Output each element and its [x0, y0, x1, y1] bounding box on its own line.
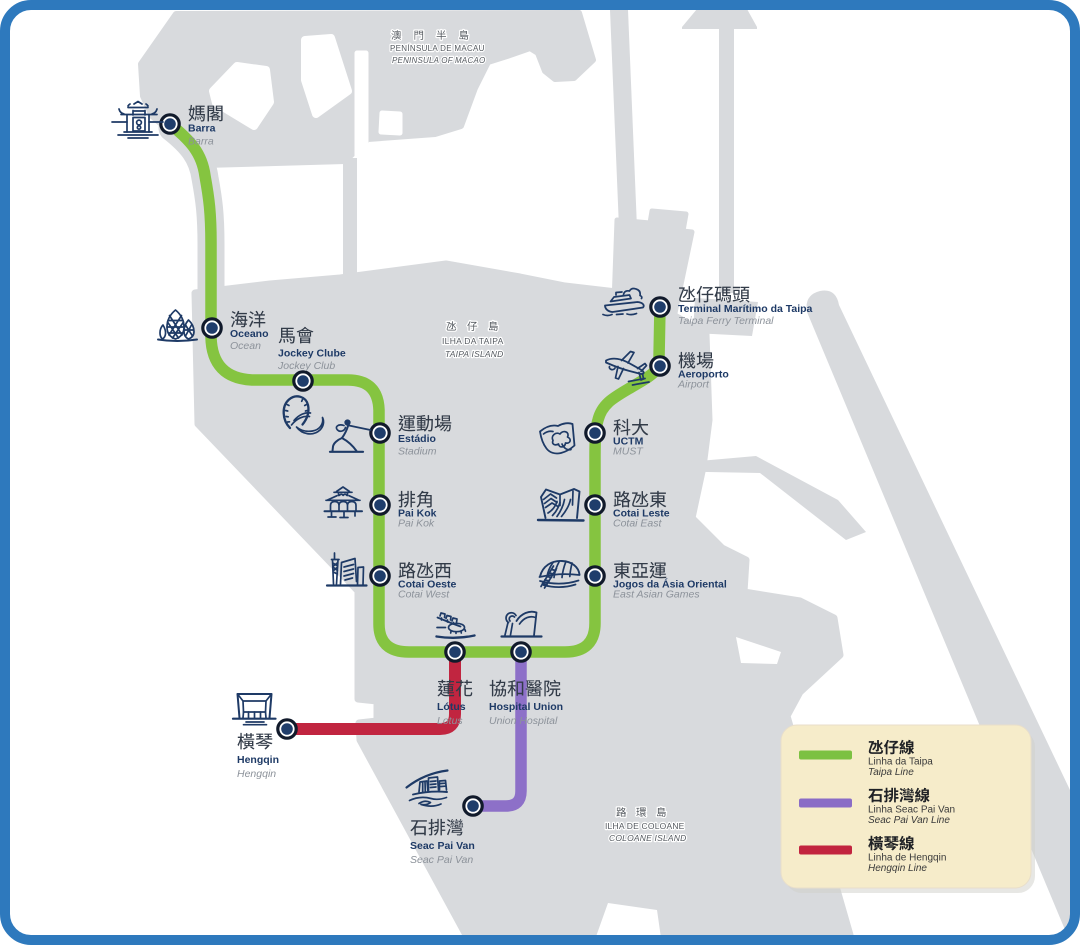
- svg-text:Lótus: Lótus: [437, 701, 466, 713]
- svg-text:Linha Seac Pai Van: Linha Seac Pai Van: [868, 805, 955, 816]
- svg-text:Oceano: Oceano: [230, 328, 269, 340]
- svg-text:Hengqin: Hengqin: [237, 754, 279, 766]
- svg-text:Jockey Club: Jockey Club: [277, 360, 335, 372]
- svg-text:Terminal Marítimo da Taipa: Terminal Marítimo da Taipa: [678, 303, 813, 315]
- svg-text:Airport: Airport: [677, 379, 710, 391]
- svg-text:Taipa Line: Taipa Line: [868, 767, 914, 778]
- svg-text:COLOANE ISLAND: COLOANE ISLAND: [609, 833, 686, 843]
- svg-text:MUST: MUST: [613, 446, 644, 458]
- svg-text:Barra: Barra: [188, 123, 216, 135]
- svg-text:Barra: Barra: [188, 136, 214, 148]
- svg-text:Cotai West: Cotai West: [398, 589, 450, 601]
- svg-text:Cotai East: Cotai East: [613, 518, 663, 530]
- svg-text:Estádio: Estádio: [398, 433, 436, 445]
- svg-text:ILHA DA TAIPA: ILHA DA TAIPA: [442, 336, 504, 346]
- svg-text:Hengqin Line: Hengqin Line: [868, 863, 927, 874]
- svg-text:Linha de Hengqin: Linha de Hengqin: [868, 853, 946, 864]
- svg-text:Stadium: Stadium: [398, 446, 437, 458]
- svg-text:Seac Pai Van Line: Seac Pai Van Line: [868, 815, 950, 826]
- svg-text:Seac Pai Van: Seac Pai Van: [410, 854, 473, 866]
- svg-text:PENÍNSULA DE MACAU: PENÍNSULA DE MACAU: [390, 44, 485, 53]
- svg-text:ILHA DE COLOANE: ILHA DE COLOANE: [605, 821, 685, 831]
- svg-text:East Asian Games: East Asian Games: [613, 589, 700, 601]
- svg-text:Lotus: Lotus: [437, 715, 463, 727]
- svg-text:TAIPA ISLAND: TAIPA ISLAND: [445, 349, 503, 359]
- svg-text:Linha da Taipa: Linha da Taipa: [868, 757, 933, 768]
- svg-text:Taipa Ferry Terminal: Taipa Ferry Terminal: [678, 315, 774, 327]
- svg-text:Jockey Clube: Jockey Clube: [278, 348, 346, 360]
- svg-text:Pai Kok: Pai Kok: [398, 518, 435, 530]
- svg-text:Union Hospital: Union Hospital: [489, 715, 558, 727]
- svg-text:Hengqin: Hengqin: [237, 768, 276, 780]
- svg-text:Seac Pai Van: Seac Pai Van: [410, 840, 475, 852]
- svg-text:Hospital Union: Hospital Union: [489, 701, 563, 713]
- svg-text:PENINSULA OF MACAO: PENINSULA OF MACAO: [392, 56, 485, 65]
- svg-text:Ocean: Ocean: [230, 340, 261, 352]
